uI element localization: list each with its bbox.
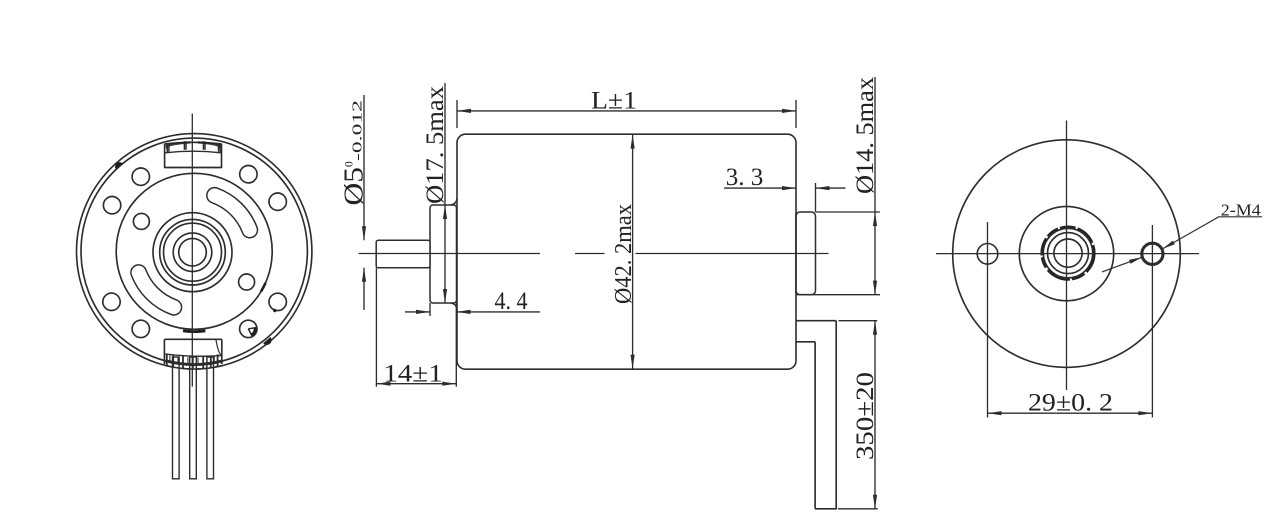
svg-text:Ø17. 5max: Ø17. 5max bbox=[422, 85, 449, 204]
svg-text:Ø42. 2max: Ø42. 2max bbox=[611, 204, 637, 304]
svg-text:Ø14. 5max: Ø14. 5max bbox=[852, 76, 879, 194]
svg-text:-0.012: -0.012 bbox=[350, 100, 365, 161]
svg-text:Ø5: Ø5 bbox=[339, 167, 369, 206]
svg-text:350±20: 350±20 bbox=[852, 372, 879, 460]
svg-text:29±0. 2: 29±0. 2 bbox=[1028, 389, 1113, 416]
svg-text:3. 3: 3. 3 bbox=[726, 164, 764, 191]
svg-text:L±1: L±1 bbox=[591, 88, 637, 115]
svg-text:14±1: 14±1 bbox=[383, 360, 443, 387]
svg-text:4. 4: 4. 4 bbox=[495, 288, 528, 315]
